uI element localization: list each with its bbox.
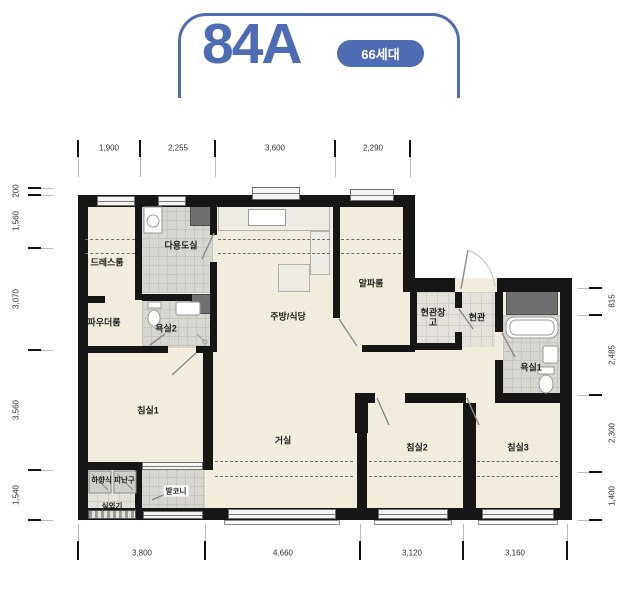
dimension-ext (578, 395, 589, 396)
dimension-label: 1,900 (99, 144, 119, 153)
room-label-balcony: 발코니 (164, 486, 189, 497)
dimension-ext (205, 524, 206, 541)
dimension-tick (589, 471, 602, 473)
dimension-label: 2,485 (608, 345, 617, 365)
dimension-label: 815 (608, 294, 617, 307)
room-label-entry-storage: 현관창고 (420, 308, 446, 329)
dimension-label: 3,160 (505, 549, 525, 558)
dimension-label: 4,660 (273, 549, 293, 558)
dimension-tick (204, 541, 206, 560)
dimension-tick (28, 469, 41, 471)
dimension-tick (409, 140, 411, 157)
room-label-bed3: 침실3 (507, 441, 529, 454)
room-label-living: 거실 (275, 434, 292, 447)
room-label-bed1: 침실1 (137, 404, 159, 417)
dimension-tick (28, 247, 41, 249)
dimension-tick (589, 314, 602, 316)
dimension-tick (589, 287, 602, 289)
fixtures-and-doors-overlay (0, 0, 642, 595)
dimension-label: 3,560 (12, 400, 21, 420)
dimension-tick (77, 541, 79, 560)
dimension-ext (463, 524, 464, 541)
dimension-label: 3,120 (402, 549, 422, 558)
dimension-ext (41, 350, 53, 351)
dimension-tick (28, 194, 41, 196)
dimension-ext (41, 470, 53, 471)
room-label-alpha: 알파룸 (359, 277, 384, 290)
dimension-ext (41, 248, 53, 249)
dimension-tick (139, 140, 141, 157)
dimension-ext (41, 188, 53, 189)
room-label-bath1: 욕실1 (520, 361, 542, 374)
dimension-tick (334, 140, 336, 157)
dimension-ext (78, 157, 79, 177)
room-label-outdoor-unit: 실외기 (102, 501, 123, 512)
dimension-ext (578, 288, 589, 289)
room-label-bed2: 침실2 (406, 441, 428, 454)
dimension-ext (578, 315, 589, 316)
dimension-ext (41, 195, 53, 196)
dimension-ext (578, 472, 589, 473)
dimension-ext (215, 157, 216, 177)
room-label-utility: 다용도실 (164, 239, 197, 252)
room-label-entry: 현관 (469, 311, 486, 324)
dimension-tick (566, 541, 568, 560)
dimension-tick (77, 140, 79, 157)
dimension-label: 3,800 (132, 549, 152, 558)
room-label-powder: 파우더룸 (87, 316, 120, 329)
dimension-ext (578, 520, 589, 521)
room-label-hatch: 하향식 피난구 (91, 475, 134, 486)
dimension-label: 200 (12, 184, 21, 197)
dimension-ext (567, 524, 568, 541)
room-label-dressroom: 드레스룸 (90, 256, 123, 269)
room-label-kitchen: 주방/식당 (270, 310, 306, 323)
dimension-label: 3,070 (12, 289, 21, 309)
dimension-ext (335, 157, 336, 177)
dimension-label: 2,290 (363, 144, 383, 153)
dimension-label: 2,300 (608, 423, 617, 443)
dimension-label: 1,400 (608, 486, 617, 506)
floor-plan-page: 84A 66세대 (0, 0, 642, 595)
room-label-bath2: 욕실2 (155, 322, 177, 335)
dimension-label: 3,600 (265, 144, 285, 153)
dimension-tick (359, 541, 361, 560)
dimension-tick (589, 394, 602, 396)
dimension-ext (140, 157, 141, 177)
dimension-tick (28, 519, 41, 521)
dimension-ext (360, 524, 361, 541)
dimension-ext (410, 157, 411, 177)
dimension-tick (214, 140, 216, 157)
dimension-tick (28, 349, 41, 351)
dimension-label: 1,560 (12, 211, 21, 231)
dimension-label: 2,255 (168, 144, 188, 153)
dimension-tick (28, 187, 41, 189)
dimension-label: 1,540 (12, 485, 21, 505)
dimension-ext (41, 520, 53, 521)
dimension-tick (589, 519, 602, 521)
dimension-ext (78, 524, 79, 541)
dimension-tick (462, 541, 464, 560)
